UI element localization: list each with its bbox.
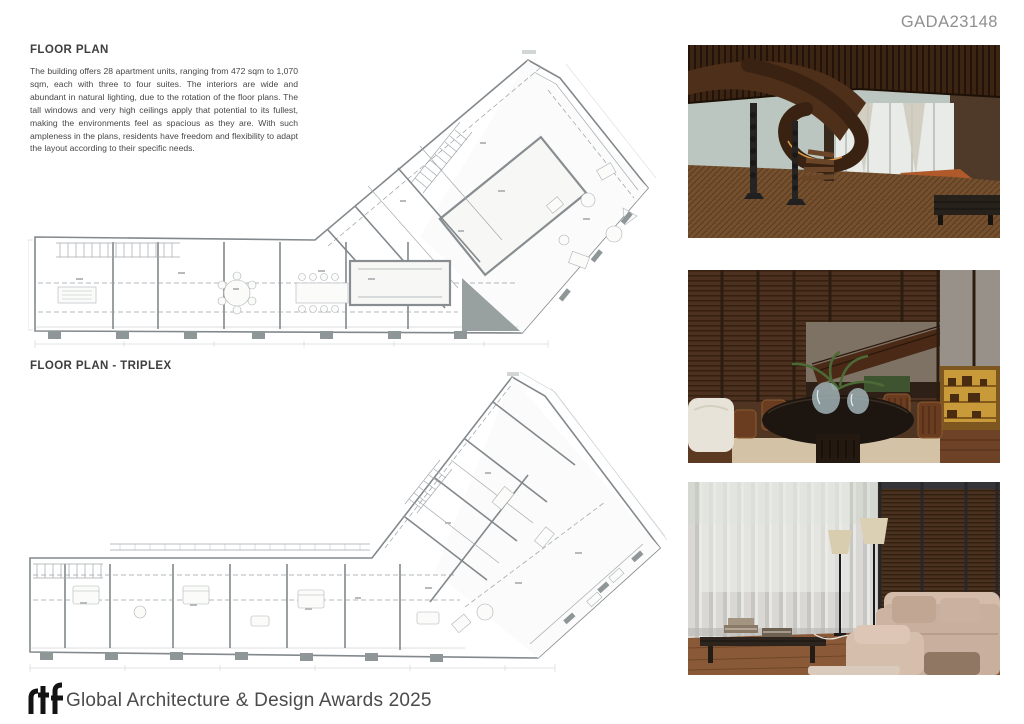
floor-plan-triplex-heading: FLOOR PLAN - TRIPLEX (30, 360, 172, 372)
floor-plan-triplex-drawing (15, 372, 670, 680)
submission-code: GADA23148 (901, 13, 998, 32)
rtf-logo (28, 682, 64, 716)
award-title: Global Architecture & Design Awards 2025 (66, 690, 432, 712)
photo-dining (688, 270, 1000, 463)
photo-staircase (688, 45, 1000, 238)
floor-plan-drawing (28, 50, 668, 350)
presentation-board: GADA23148 FLOOR PLAN The building offers… (0, 0, 1024, 724)
photo-living (688, 482, 1000, 675)
